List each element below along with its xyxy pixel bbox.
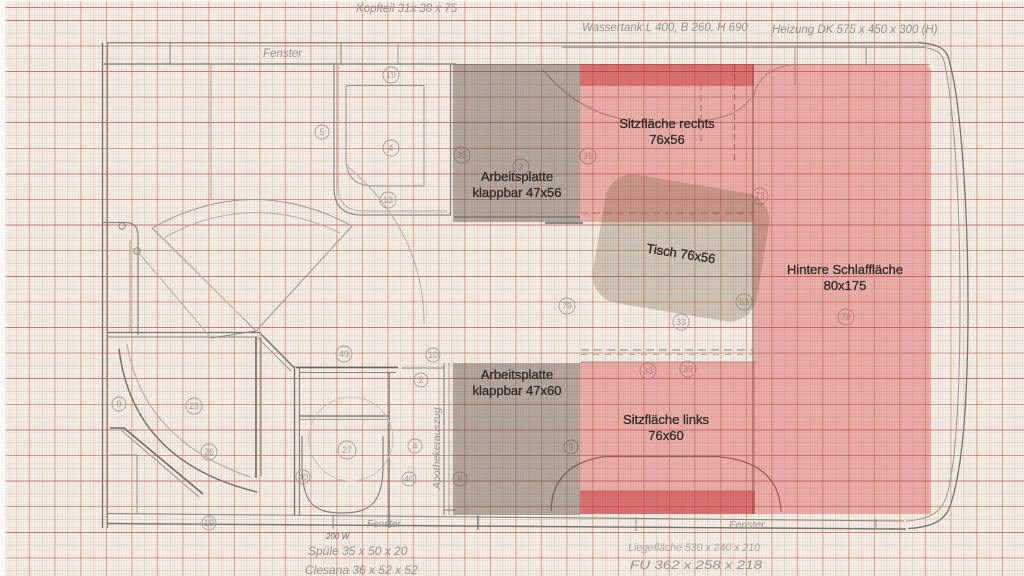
svg-text:Clesana 36 x 52 x 52: Clesana 36 x 52 x 52 [305,563,418,576]
svg-text:5: 5 [319,127,324,137]
svg-text:13: 13 [383,195,393,205]
svg-text:49: 49 [339,349,349,359]
svg-text:Spüle 35 x 50 x 20: Spüle 35 x 50 x 20 [308,544,408,558]
svg-text:40: 40 [298,472,308,482]
svg-text:FU 362 x 258 x 218: FU 362 x 258 x 218 [630,558,762,572]
svg-text:200 W: 200 W [325,532,351,541]
svg-text:Kopfteil 31x 38 x 75: Kopfteil 31x 38 x 75 [356,3,458,15]
svg-text:10: 10 [428,350,438,360]
svg-text:19: 19 [386,70,396,80]
svg-text:26: 26 [204,447,214,457]
svg-text:40: 40 [404,474,414,484]
svg-text:Wassertank L 400, B 260, H: Wassertank L 400, B 260, H 690 [582,22,748,34]
svg-text:Apothekerauszug: Apothekerauszug [431,407,443,490]
svg-text:Fenster: Fenster [729,519,765,531]
svg-text:4: 4 [412,441,417,451]
svg-text:79: 79 [562,301,572,311]
svg-text:Fenster: Fenster [263,48,303,60]
svg-text:9: 9 [116,399,121,409]
svg-text:Fenster: Fenster [367,519,402,530]
svg-text:33: 33 [676,317,686,327]
svg-text:4: 4 [388,143,393,153]
svg-text:23: 23 [189,401,199,411]
svg-text:Heizung DK 575 x 450 x 300 (H: Heizung DK 575 x 450 x 300 (H) [772,24,938,36]
svg-text:19: 19 [204,518,214,528]
svg-text:Liegefläche 530 x 240 x 210: Liegefläche 530 x 240 x 210 [628,542,761,554]
svg-text:27: 27 [342,445,352,455]
